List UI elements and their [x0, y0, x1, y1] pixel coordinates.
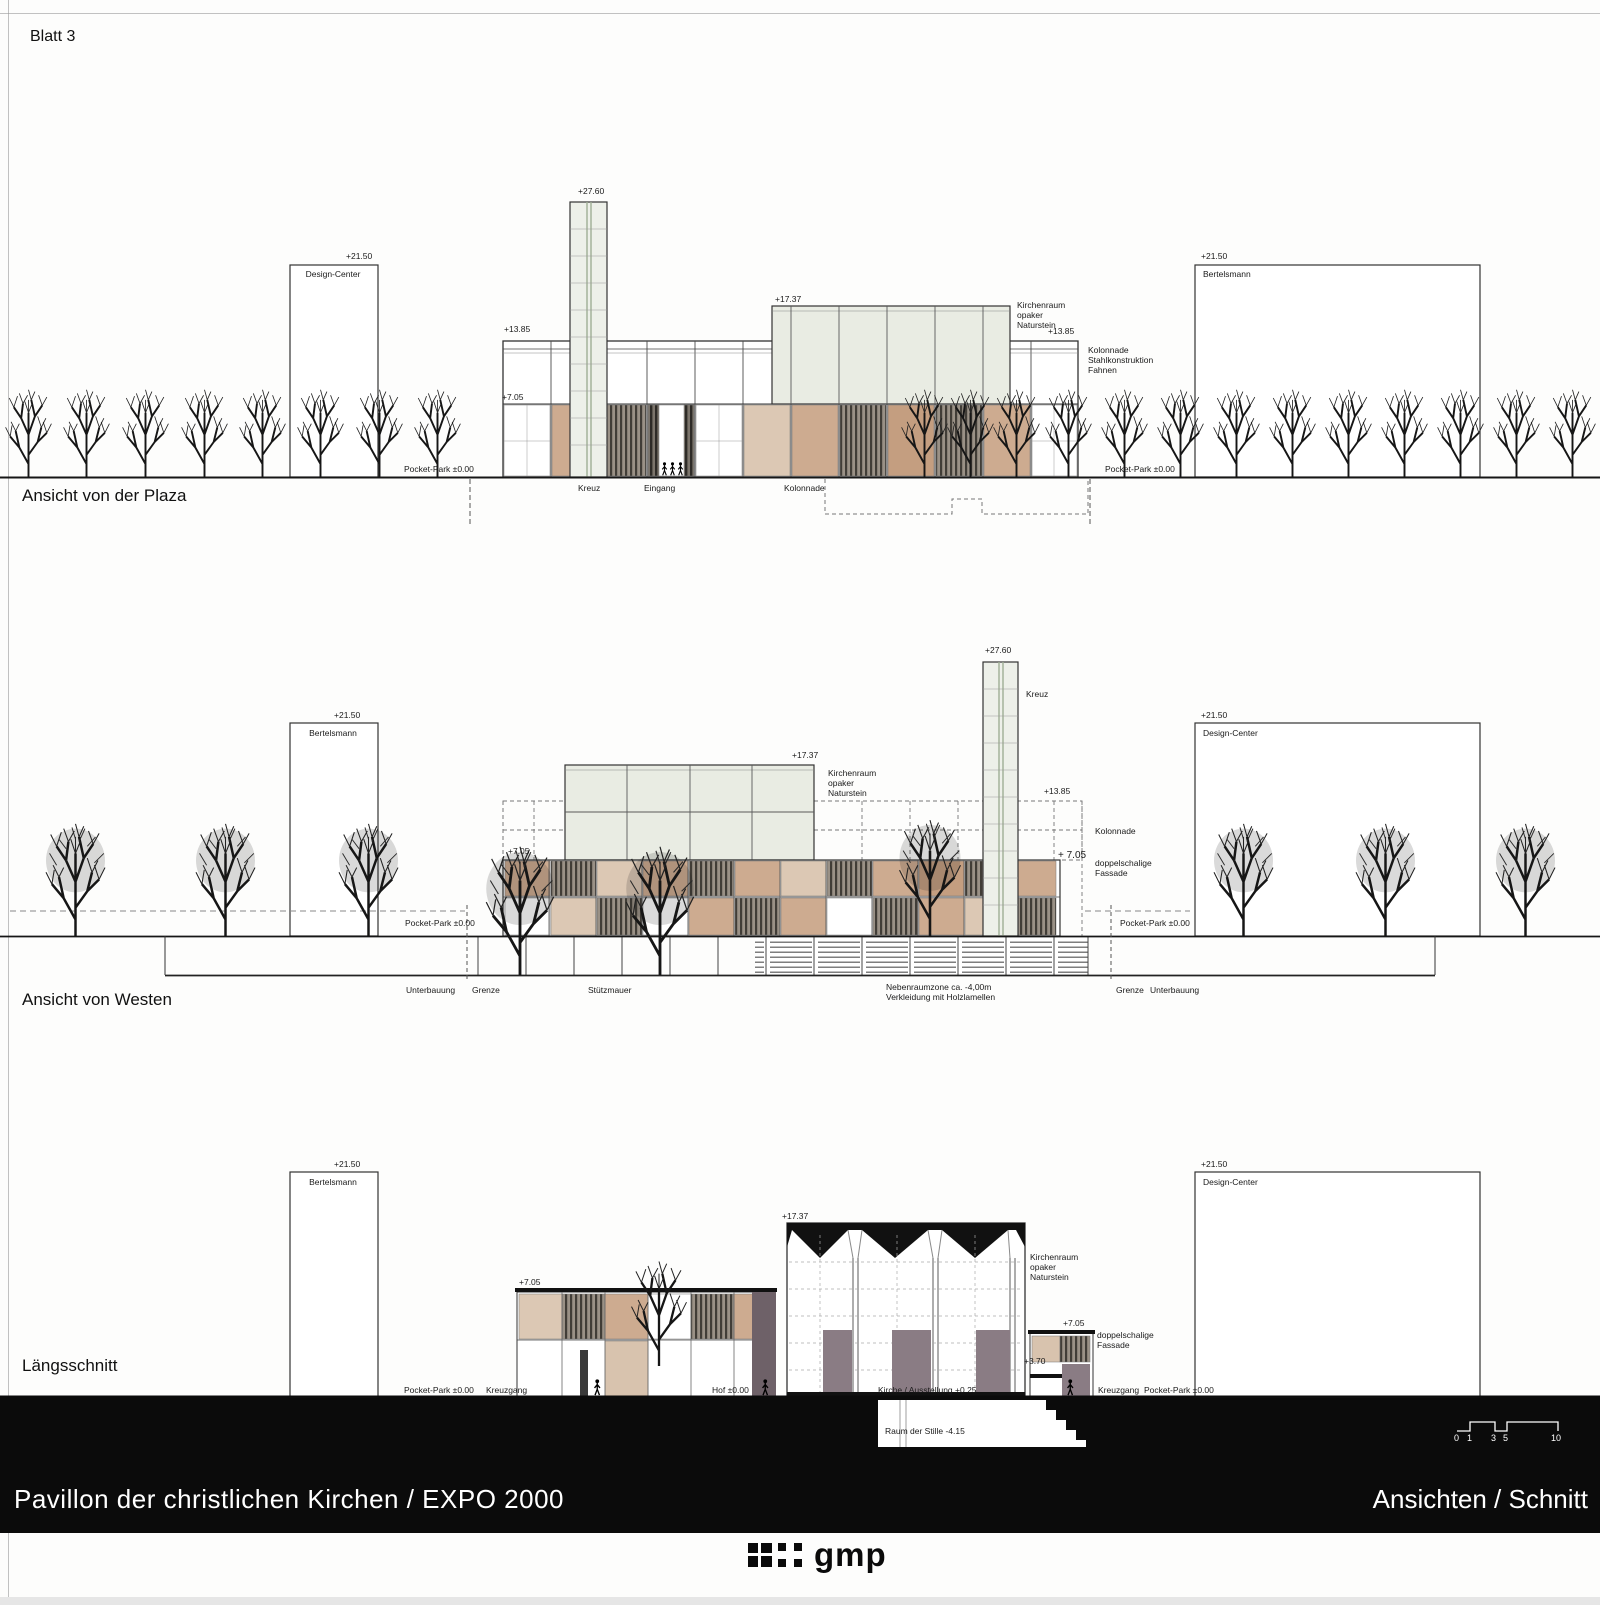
schnitt-bertelsmann-label: Bertelsmann — [292, 1177, 374, 1187]
drawing-sheet: Blatt 3 — [0, 0, 1600, 1605]
westen-design-center-label: Design-Center — [1203, 728, 1258, 738]
schnitt-kirche-label: Kirche / Ausstellung +0.25 — [878, 1385, 977, 1395]
view-title-westen: Ansicht von Westen — [22, 990, 172, 1010]
schnitt-level-1737: +17.37 — [782, 1211, 808, 1221]
gmp-logo-icon — [748, 1541, 806, 1569]
westen-kolonnade-label: Kolonnade — [1095, 826, 1136, 836]
schnitt-raum-der-stille-label: Raum der Stille -4.15 — [885, 1426, 965, 1436]
westen-level-705-left: +7.05 — [508, 846, 530, 856]
plaza-level-2760: +27.60 — [578, 186, 604, 196]
trees-plaza — [6, 390, 1596, 477]
plaza-eingang-label: Eingang — [644, 483, 675, 493]
schnitt-fassade-note: doppelschalige Fassade — [1097, 1330, 1154, 1350]
scale-number-1: 1 — [1467, 1433, 1472, 1443]
westen-fassade-note: doppelschalige Fassade — [1095, 858, 1152, 878]
westen-kirchenraum-note: Kirchenraum opaker Naturstein — [828, 768, 876, 798]
schnitt-level-2150-right: +21.50 — [1201, 1159, 1227, 1169]
schnitt-design-center-label: Design-Center — [1203, 1177, 1258, 1187]
westen-unterbauung-right: Unterbauung — [1150, 985, 1199, 995]
schnitt-kreuzgang-right: Kreuzgang — [1098, 1385, 1139, 1395]
schnitt-level-705-right: +7.05 — [1063, 1318, 1085, 1328]
view-title-schnitt: Längsschnitt — [22, 1356, 117, 1376]
plaza-level-2150-right: +21.50 — [1201, 251, 1227, 261]
sheet-border-top — [0, 13, 1600, 14]
sheet-bottom-edge — [0, 1597, 1600, 1605]
schnitt-hof-label: Hof ±0.00 — [712, 1385, 749, 1395]
schnitt-kirchenraum-note: Kirchenraum opaker Naturstein — [1030, 1252, 1078, 1282]
schnitt-level-2150-left: +21.50 — [334, 1159, 360, 1169]
westen-bertelsmann-label: Bertelsmann — [292, 728, 374, 738]
plaza-design-center-label: Design-Center — [292, 269, 374, 279]
scale-number-0: 0 — [1454, 1433, 1459, 1443]
plaza-level-705: +7.05 — [502, 392, 524, 402]
westen-level-1737: +17.37 — [792, 750, 818, 760]
sheet-border-left — [8, 0, 9, 1600]
view-title-plaza: Ansicht von der Plaza — [22, 486, 186, 506]
westen-level-2150-left: +21.50 — [334, 710, 360, 720]
westen-stuetzmauer-label: Stützmauer — [588, 985, 631, 995]
plaza-level-1385-left: +13.85 — [504, 324, 530, 334]
plaza-bertelsmann-label: Bertelsmann — [1203, 269, 1251, 279]
plaza-kreuz-label: Kreuz — [578, 483, 600, 493]
schnitt-pocket-park-left: Pocket-Park ±0.00 — [404, 1385, 474, 1395]
westen-pocket-park-left: Pocket-Park ±0.00 — [405, 918, 475, 928]
sheet-subtitle: Ansichten / Schnitt — [1373, 1484, 1588, 1515]
sheet-number: Blatt 3 — [30, 28, 75, 46]
westen-pocket-park-right: Pocket-Park ±0.00 — [1120, 918, 1190, 928]
plaza-kolonnade-label: Kolonnade — [784, 483, 825, 493]
schnitt-pocket-park-right: Pocket-Park ±0.00 — [1144, 1385, 1214, 1395]
schnitt-kreuzgang-left: Kreuzgang — [486, 1385, 527, 1395]
view-westen-art — [0, 662, 1600, 982]
westen-grenze-right: Grenze — [1116, 985, 1144, 995]
trees-westen — [46, 820, 1555, 975]
plaza-pocket-park-left: Pocket-Park ±0.00 — [404, 464, 474, 474]
westen-unterbauung-left: Unterbauung — [406, 985, 455, 995]
westen-level-2150-right: +21.50 — [1201, 710, 1227, 720]
plaza-pocket-park-right: Pocket-Park ±0.00 — [1105, 464, 1175, 474]
scale-number-5: 5 — [1503, 1433, 1508, 1443]
westen-kreuz-label: Kreuz — [1026, 689, 1048, 699]
elevation-linework — [0, 0, 1600, 1605]
westen-nebenraum-note: Nebenraumzone ca. -4,00m Verkleidung mit… — [886, 982, 995, 1002]
plaza-level-2150-left: +21.50 — [346, 251, 372, 261]
sheet-title: Pavillon der christlichen Kirchen / EXPO… — [14, 1484, 564, 1515]
gmp-logo-text: gmp — [814, 1538, 887, 1571]
schnitt-level-370: +3.70 — [1024, 1356, 1046, 1366]
schnitt-level-705-left: +7.05 — [519, 1277, 541, 1287]
plaza-level-1737: +17.37 — [775, 294, 801, 304]
plaza-kolonnade-note: Kolonnade Stahlkonstruktion Fahnen — [1088, 345, 1153, 375]
scale-number-3: 3 — [1491, 1433, 1496, 1443]
gmp-logo: gmp — [748, 1538, 887, 1571]
scale-number-10: 10 — [1551, 1433, 1561, 1443]
plaza-kirchenraum-note: Kirchenraum opaker Naturstein — [1017, 300, 1065, 330]
view-plaza-art — [0, 202, 1600, 525]
westen-level-705-right: + 7.05 — [1058, 850, 1086, 861]
westen-grenze-left: Grenze — [472, 985, 500, 995]
westen-level-2760: +27.60 — [985, 645, 1011, 655]
westen-level-1385: +13.85 — [1044, 786, 1070, 796]
